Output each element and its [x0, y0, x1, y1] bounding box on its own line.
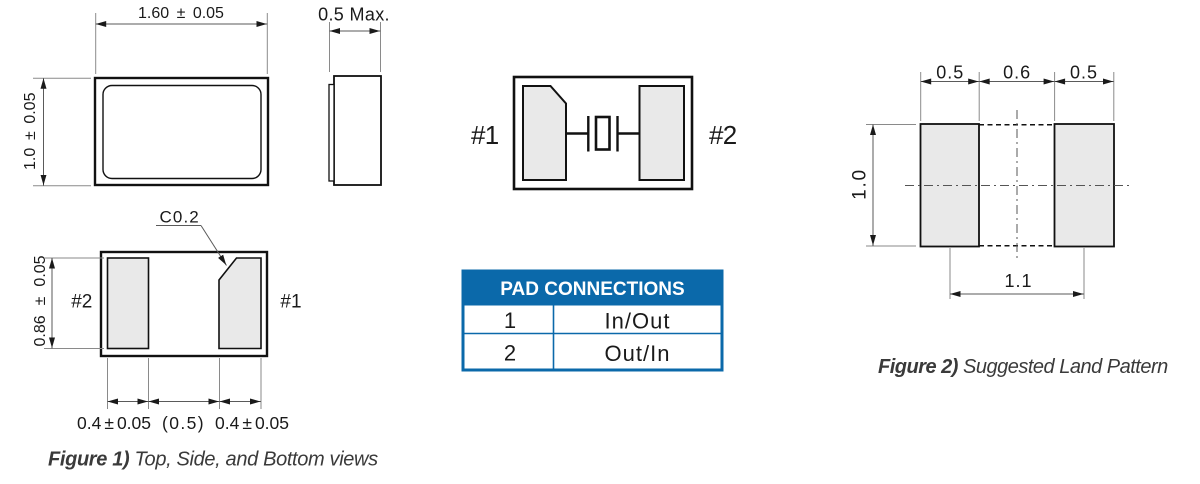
- svg-text:0.5 Max.: 0.5 Max.: [318, 5, 390, 25]
- svg-text:Out/In: Out/In: [605, 341, 671, 366]
- svg-text:0.4±0.05: 0.4±0.05: [77, 413, 151, 433]
- svg-text:0.4±0.05: 0.4±0.05: [215, 413, 289, 433]
- svg-text:In/Out: In/Out: [605, 309, 671, 334]
- svg-text:PAD CONNECTIONS: PAD CONNECTIONS: [500, 279, 684, 300]
- svg-text:1.0: 1.0: [850, 168, 871, 200]
- svg-text:1.1: 1.1: [1004, 271, 1032, 291]
- svg-text:1.60±0.05: 1.60±0.05: [138, 5, 224, 22]
- svg-text:1.0±0.05: 1.0±0.05: [22, 92, 39, 170]
- svg-text:0.6: 0.6: [1003, 63, 1031, 83]
- svg-text:0.5: 0.5: [1070, 63, 1098, 83]
- svg-text:#2: #2: [71, 291, 92, 312]
- svg-text:2: 2: [504, 340, 516, 365]
- svg-text:0.86±0.05: 0.86±0.05: [32, 255, 49, 346]
- svg-text:0.5: 0.5: [936, 63, 964, 83]
- svg-text:Figure 2) Suggested Land Patte: Figure 2) Suggested Land Pattern: [878, 356, 1168, 378]
- svg-text:1: 1: [504, 308, 516, 333]
- svg-text:C0.2: C0.2: [160, 208, 200, 227]
- svg-text:Figure 1) Top, Side, and Botto: Figure 1) Top, Side, and Bottom views: [48, 449, 378, 471]
- svg-text:#1: #1: [471, 120, 499, 150]
- svg-text:#2: #2: [709, 120, 737, 150]
- svg-text:#1: #1: [280, 291, 301, 312]
- svg-text:(0.5): (0.5): [162, 413, 205, 433]
